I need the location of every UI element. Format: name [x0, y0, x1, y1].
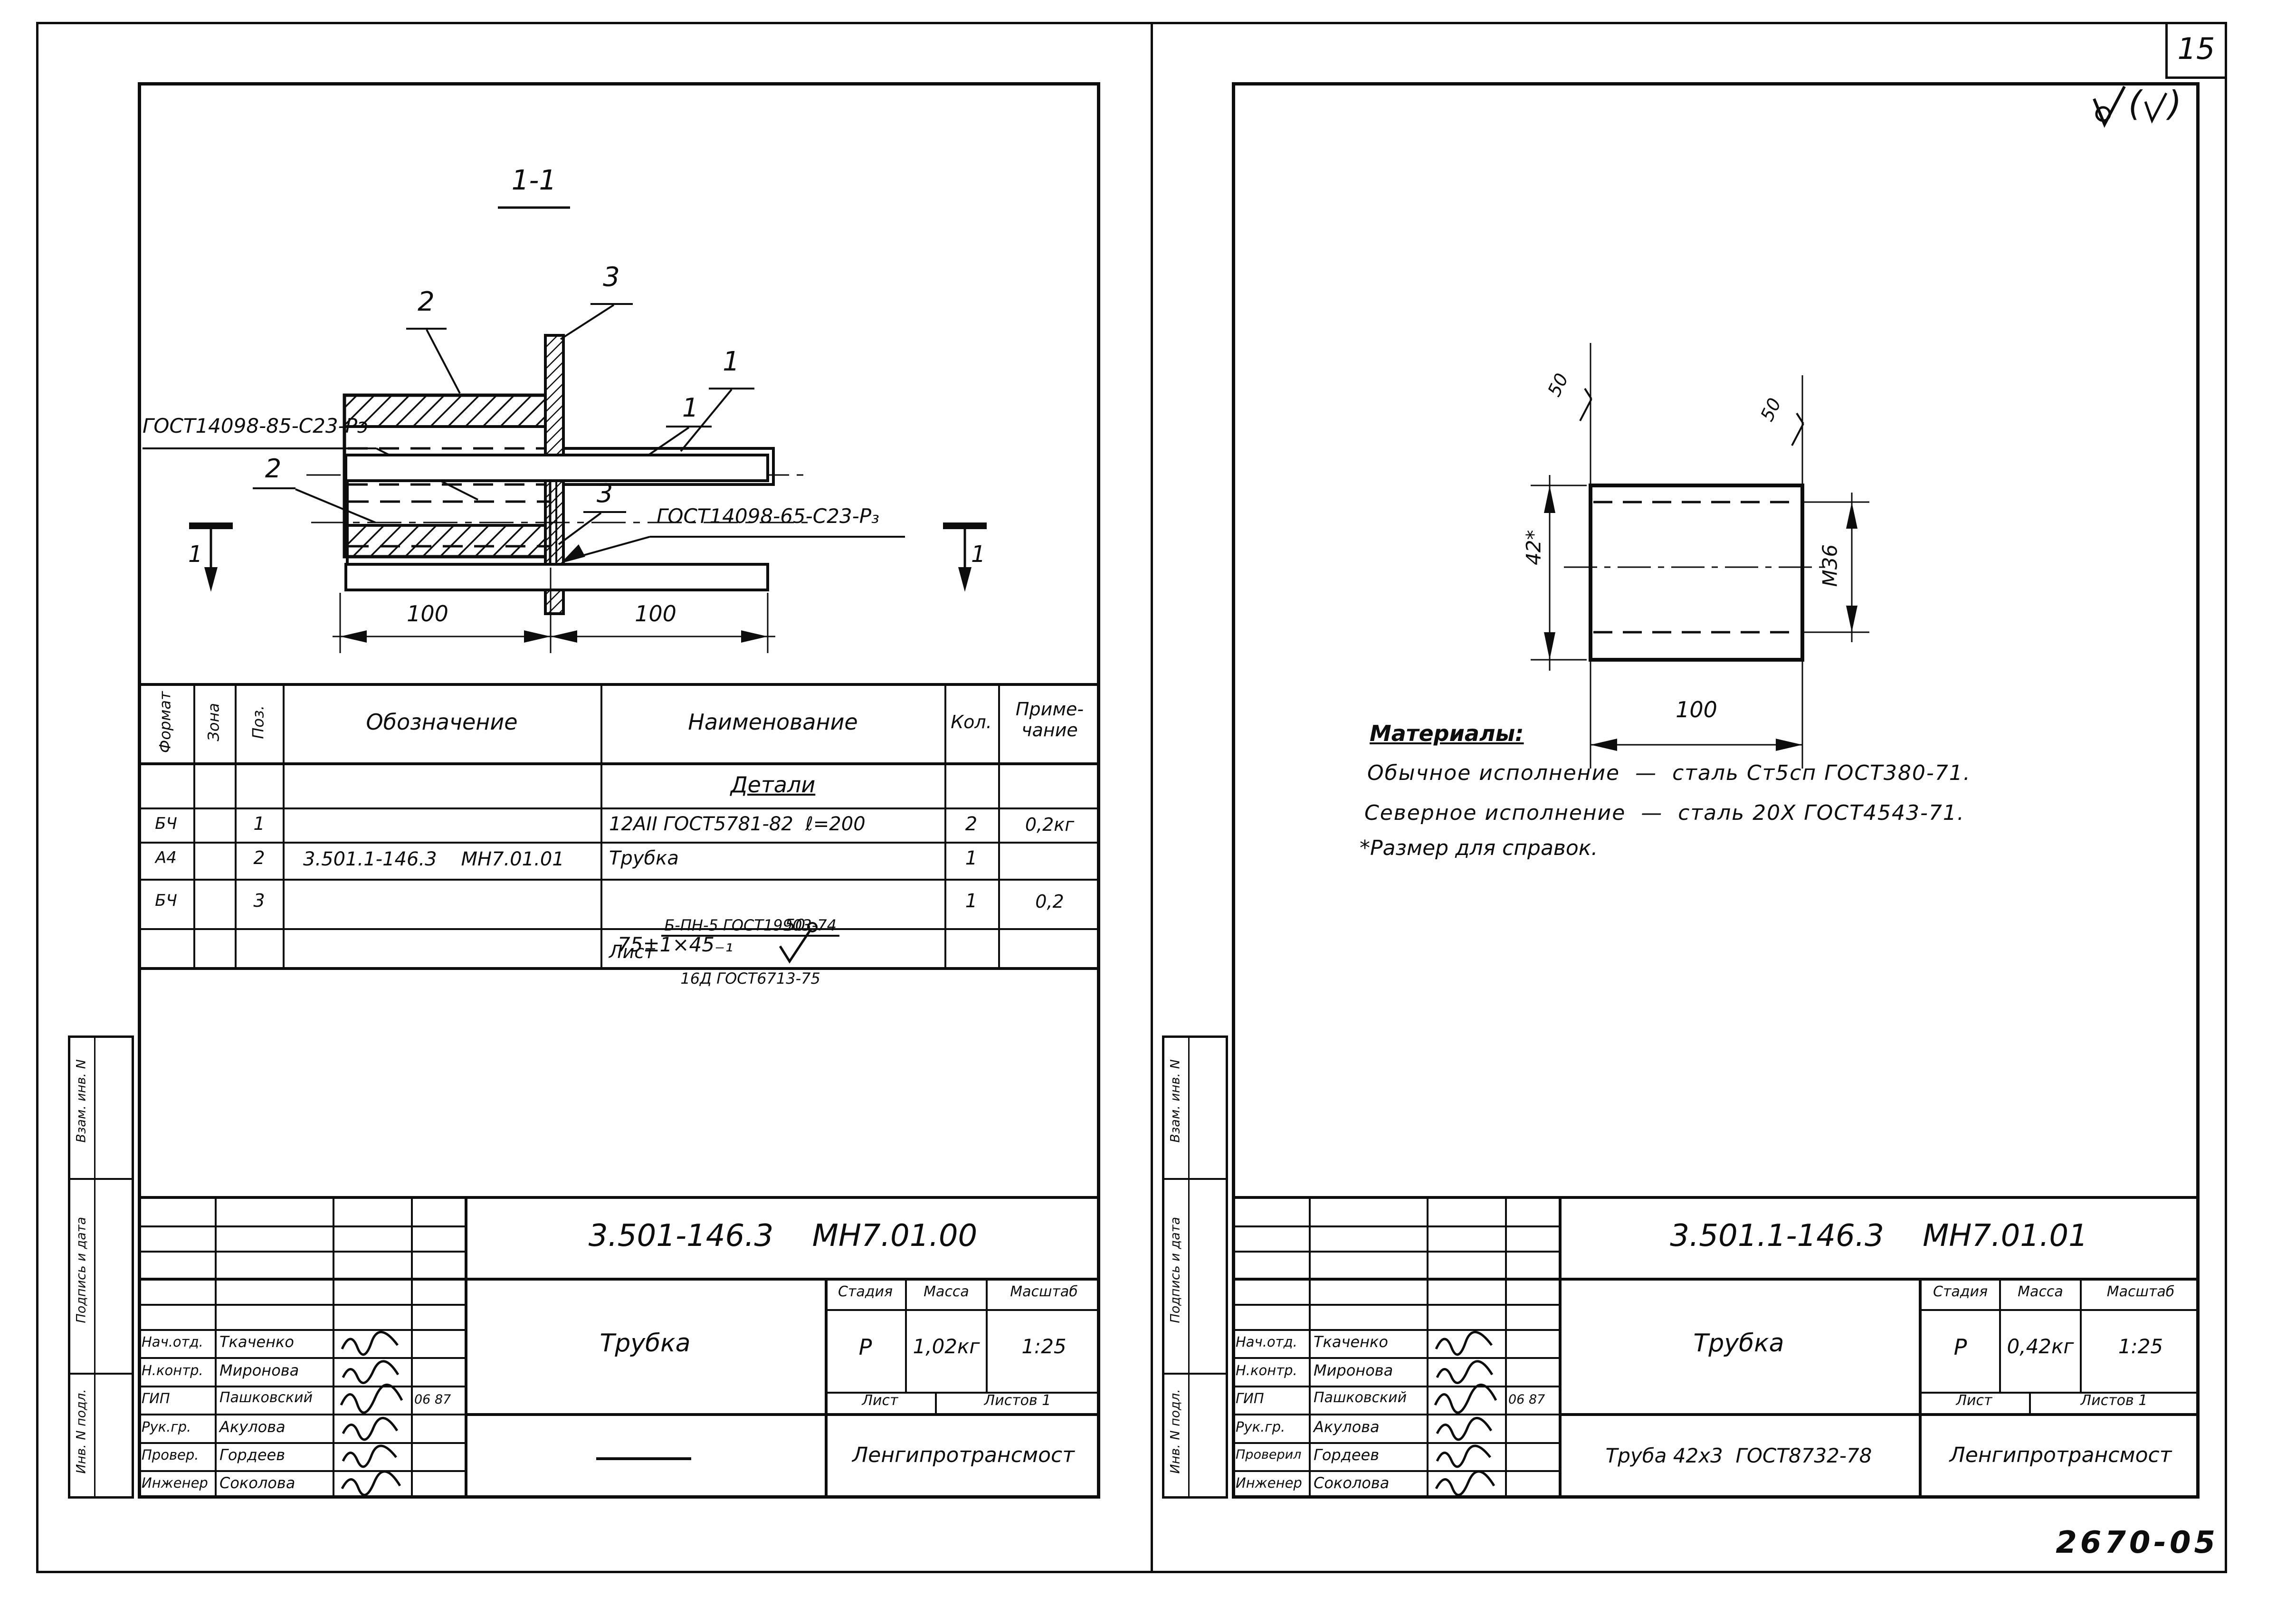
- tbL-role-4: Провер.: [142, 1448, 213, 1463]
- dim-42: 42*: [1523, 510, 1544, 586]
- tbL-scale: 1:25: [988, 1336, 1100, 1357]
- tbL-h1: [138, 1225, 465, 1227]
- tbL-role-0: Нач.отд.: [142, 1335, 213, 1349]
- tbR-name-0: Ткаченко: [1314, 1334, 1425, 1350]
- spec-r4-text: 75±1×45₋₁: [618, 934, 733, 955]
- spec-r1-pos: 1: [236, 814, 283, 834]
- materials-line1: Обычное исполнение — сталь Ст5сп ГОСТ380…: [1367, 762, 1971, 785]
- tbL-v2: [333, 1196, 334, 1499]
- tbL-role-1: Н.контр.: [142, 1363, 213, 1378]
- tbL-role-2: ГИП: [142, 1391, 213, 1406]
- spec-r3-fraction-bottom: 16Д ГОСТ6713-75: [661, 969, 839, 987]
- tbR-name-2: Пашковский: [1314, 1390, 1425, 1406]
- tbL-name-5: Соколова: [219, 1475, 331, 1491]
- tbR-sheet-label: Лист: [1921, 1393, 2028, 1408]
- tbR-role-4: Проверил: [1236, 1448, 1312, 1462]
- spec-r1-note: 0,2кг: [999, 815, 1100, 835]
- spec-header-zone: Зона: [206, 686, 222, 758]
- tbL-scale-label: Масштаб: [988, 1284, 1100, 1300]
- spec-r2-pos: 2: [236, 848, 283, 868]
- tbL-h7: [138, 1414, 465, 1415]
- tbL-h2: [138, 1251, 465, 1253]
- tbR-mass: 0,42кг: [2001, 1336, 2080, 1357]
- dim-100-left: 100: [390, 602, 466, 626]
- spec-row-line1: [138, 807, 1100, 809]
- tbL-top: [138, 1196, 1100, 1199]
- tbL-stage: Р: [826, 1336, 905, 1359]
- tbL-name-0: Ткаченко: [219, 1334, 331, 1350]
- v1-part-label-3: 3: [590, 263, 633, 292]
- tbL-org: Ленгипротрансмост: [829, 1444, 1098, 1467]
- tbL-nameline: [465, 1413, 1100, 1416]
- tbR-mass-label: Масса: [2001, 1284, 2080, 1300]
- weld-callout-top: ГОСТ14098-85-С23-Рэ: [143, 415, 368, 437]
- tbL-h4: [138, 1329, 465, 1331]
- rough-paren-open: (: [2128, 85, 2142, 123]
- spec-group-title: Детали: [603, 773, 943, 797]
- spec-r2-format: А4: [139, 849, 193, 867]
- spec-r4-flag-value: 50: [785, 917, 805, 934]
- tbL-role-3: Рук.гр.: [142, 1420, 213, 1434]
- tbR-gip-date: 06 87: [1508, 1393, 1559, 1406]
- tbL-material-dash: [596, 1457, 691, 1460]
- tbR-scale: 1:25: [2082, 1336, 2200, 1357]
- tbR-name-4: Гордеев: [1314, 1447, 1425, 1463]
- v1-part-label-2: 2: [405, 288, 448, 316]
- tbR-h7: [1232, 1414, 1559, 1415]
- tbR-product-title: Трубка: [1568, 1330, 1910, 1357]
- tbR-stage: Р: [1921, 1336, 2000, 1359]
- tbL-gip-date: 06 87: [414, 1393, 465, 1406]
- materials-heading: Материалы:: [1370, 722, 1524, 746]
- tbR-scale-label: Масштаб: [2082, 1284, 2200, 1300]
- v2-part-label-3: 3: [583, 480, 626, 507]
- tbR-h9: [1232, 1470, 1559, 1472]
- spec-r1-qty: 2: [944, 814, 998, 835]
- tbL-stage-label: Стадия: [826, 1284, 905, 1300]
- tbR-h6: [1232, 1386, 1559, 1387]
- spec-r2-qty: 1: [944, 848, 998, 869]
- tbR-h3: [1232, 1304, 1559, 1306]
- tbR-role-2: ГИП: [1236, 1391, 1307, 1406]
- materials-footnote: *Размер для справок.: [1360, 837, 1598, 860]
- spec-vline-1: [193, 683, 195, 970]
- spec-r2-name: Трубка: [609, 848, 679, 869]
- rough-paren-close: ): [2168, 85, 2181, 123]
- tbR-hdrline: [1919, 1309, 2200, 1311]
- spec-header-name: Наименование: [603, 711, 943, 734]
- tbL-role-5: Инженер: [142, 1476, 213, 1491]
- spec-r1-name: 12АII ГОСТ5781-82 ℓ=200: [609, 814, 866, 835]
- v1-part-label-1: 1: [710, 348, 752, 376]
- spec-header-bottom: [138, 762, 1100, 765]
- tbR-top: [1232, 1196, 2200, 1199]
- tbR-role-3: Рук.гр.: [1236, 1420, 1307, 1434]
- tbL-name-4: Гордеев: [219, 1447, 331, 1463]
- tbL-h6: [138, 1386, 465, 1387]
- spec-r3-pos: 3: [236, 891, 283, 911]
- tbR-sheets-label: Листов 1: [2031, 1393, 2197, 1408]
- spec-r3-format: БЧ: [139, 892, 193, 910]
- tbL-h3: [138, 1304, 465, 1306]
- spec-vline-3: [283, 683, 285, 970]
- tbL-v3: [411, 1196, 413, 1499]
- tbL-mass: 1,02кг: [907, 1336, 986, 1357]
- tbR-role-5: Инженер: [1236, 1476, 1307, 1491]
- tbL-h9: [138, 1470, 465, 1472]
- tbL-sheet-label: Лист: [827, 1393, 933, 1408]
- tbR-material: Труба 42х3 ГОСТ8732-78: [1563, 1445, 1914, 1466]
- tbL-h8: [138, 1442, 465, 1444]
- tbR-name-5: Соколова: [1314, 1475, 1425, 1491]
- weld-callout-bottom: ГОСТ14098-65-С23-Р₃: [657, 505, 879, 527]
- tbR-h4: [1232, 1329, 1559, 1331]
- tbR-h5: [1232, 1357, 1559, 1359]
- spec-header-format: Формат: [157, 686, 174, 758]
- drawing-scan: 15 2670-05 Взам. инв. N Подпись и дата И…: [0, 0, 2286, 1624]
- tbR-role-1: Н.контр.: [1236, 1363, 1307, 1378]
- spec-row-line2: [138, 842, 1100, 844]
- tbR-org: Ленгипротрансмост: [1924, 1444, 2197, 1467]
- tbL-v1: [215, 1196, 217, 1499]
- spec-row-line3: [138, 879, 1100, 881]
- spec-r3-qty: 1: [944, 891, 998, 912]
- spec-header-pos: Поз.: [250, 686, 267, 758]
- v2-part-label-1: 1: [669, 394, 712, 422]
- tbL-h5: [138, 1357, 465, 1359]
- tbL-product-title: Трубка: [475, 1330, 815, 1357]
- tbR-h2: [1232, 1251, 1559, 1253]
- tbR-docline: [1232, 1278, 2200, 1281]
- dim-m36: М36: [1819, 528, 1840, 604]
- tbL-name-3: Акулова: [219, 1419, 331, 1435]
- materials-line2: Северное исполнение — сталь 20Х ГОСТ4543…: [1364, 802, 1965, 825]
- section-mark-left: 1: [188, 542, 209, 567]
- tbL-v4: [465, 1196, 467, 1499]
- spec-r2-designation: 3.501.1-146.3 МН7.01.01: [303, 849, 564, 870]
- spec-header-note: Приме-чание: [999, 699, 1100, 741]
- tbR-role-0: Нач.отд.: [1236, 1335, 1307, 1349]
- tbL-docline: [138, 1278, 1100, 1281]
- spec-header-qty: Кол.: [944, 712, 998, 732]
- tbR-v4: [1559, 1196, 1562, 1499]
- dim-100: 100: [1661, 698, 1732, 722]
- spec-vline-4: [600, 683, 602, 970]
- tbL-hdrline: [825, 1309, 1100, 1311]
- spec-r3-note: 0,2: [999, 892, 1100, 912]
- spec-header-designation: Обозначение: [285, 711, 599, 734]
- tbR-name-1: Миронова: [1314, 1362, 1425, 1379]
- tbR-name-3: Акулова: [1314, 1419, 1425, 1435]
- section-view-title: 1-1: [486, 165, 581, 195]
- v2-part-label-2: 2: [252, 455, 295, 483]
- tbR-nameline: [1559, 1413, 2200, 1416]
- tbR-stage-label: Стадия: [1921, 1284, 2000, 1300]
- tbR-h8: [1232, 1442, 1559, 1444]
- tbL-name-1: Миронова: [219, 1362, 331, 1379]
- tbL-doc-number: 3.501-146.3 МН7.01.00: [475, 1220, 1091, 1253]
- tbL-sheets-label: Листов 1: [937, 1393, 1098, 1408]
- tbR-doc-number: 3.501.1-146.3 МН7.01.01: [1568, 1220, 2190, 1253]
- tbL-name-2: Пашковский: [219, 1390, 331, 1406]
- spec-r1-format: БЧ: [139, 815, 193, 833]
- section-mark-right: 1: [971, 542, 992, 567]
- tbR-v3: [1505, 1196, 1507, 1499]
- tbR-h1: [1232, 1225, 1559, 1227]
- tbL-mass-label: Масса: [907, 1284, 986, 1300]
- dim-100-right: 100: [618, 602, 694, 626]
- tbR-v2: [1427, 1196, 1429, 1499]
